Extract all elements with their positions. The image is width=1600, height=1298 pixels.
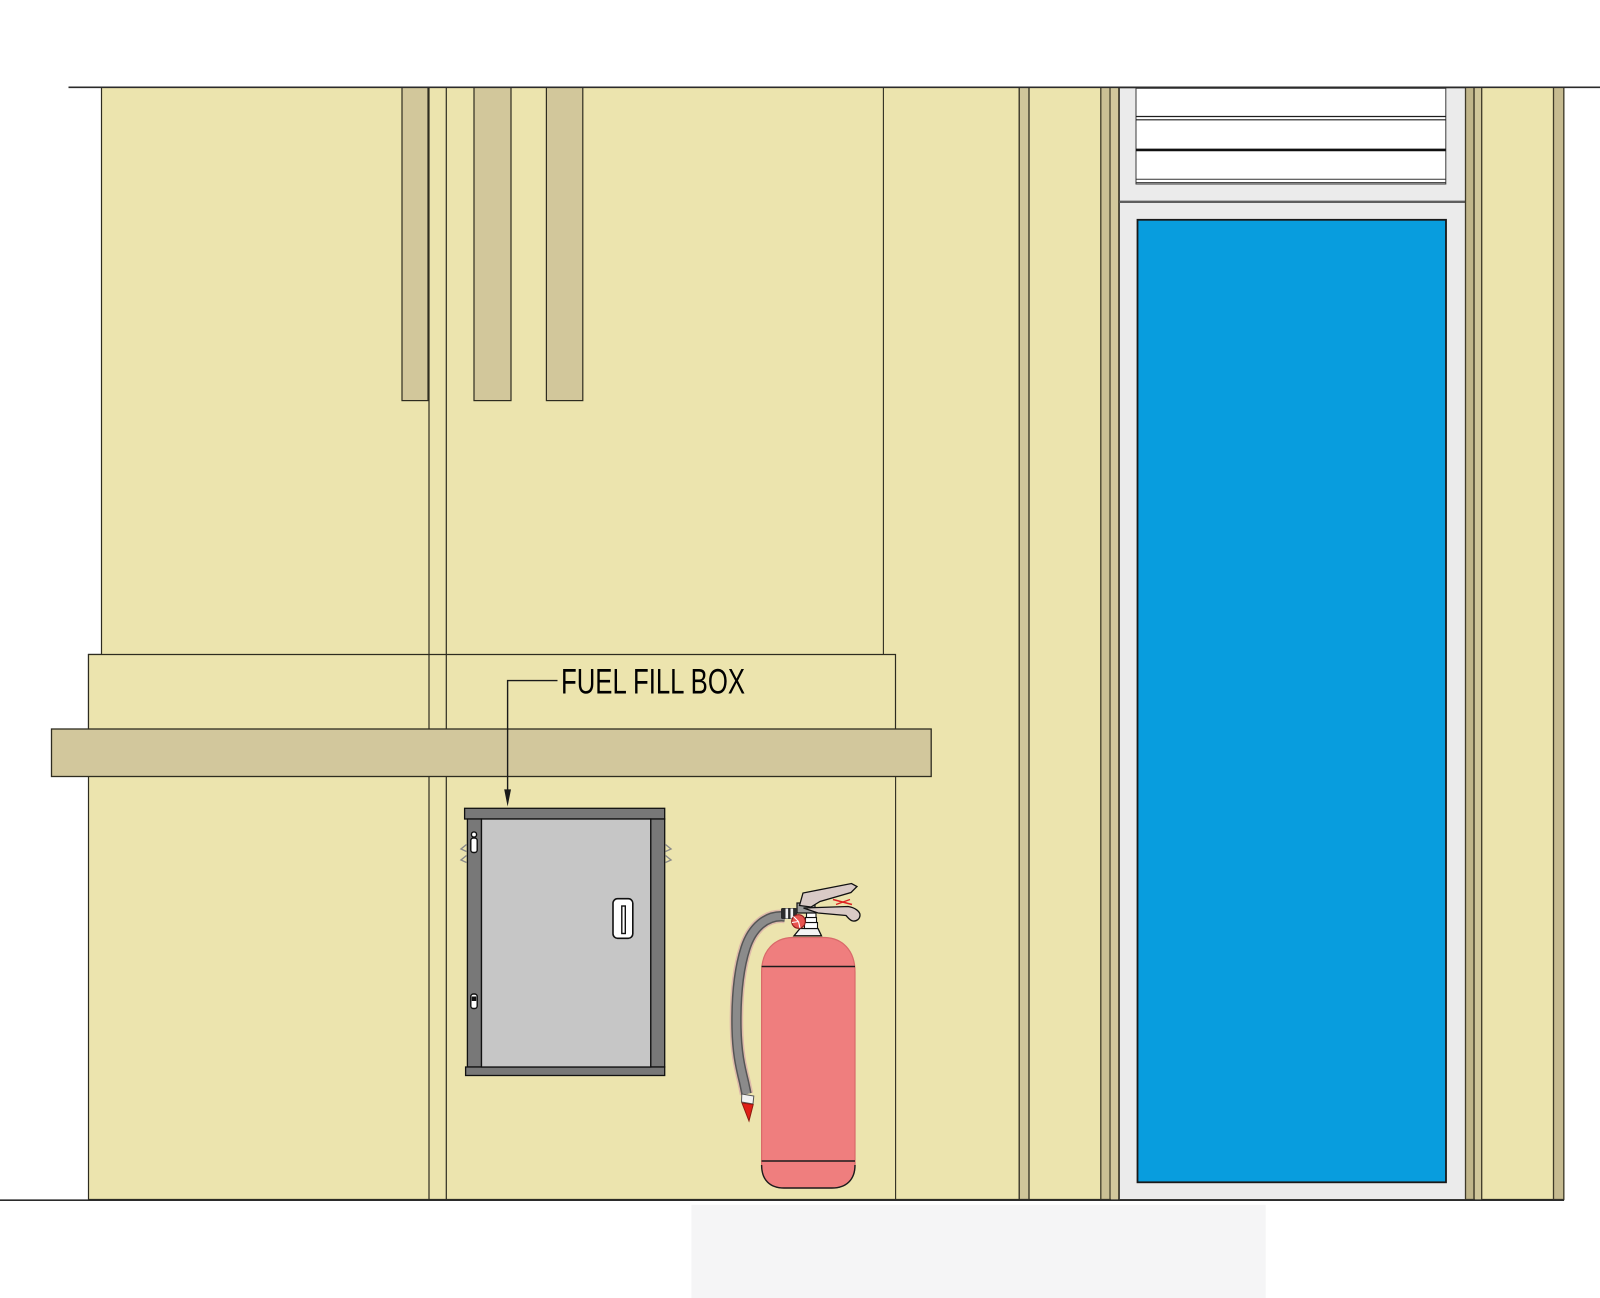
svg-text:FUEL FILL BOX: FUEL FILL BOX (561, 663, 745, 702)
